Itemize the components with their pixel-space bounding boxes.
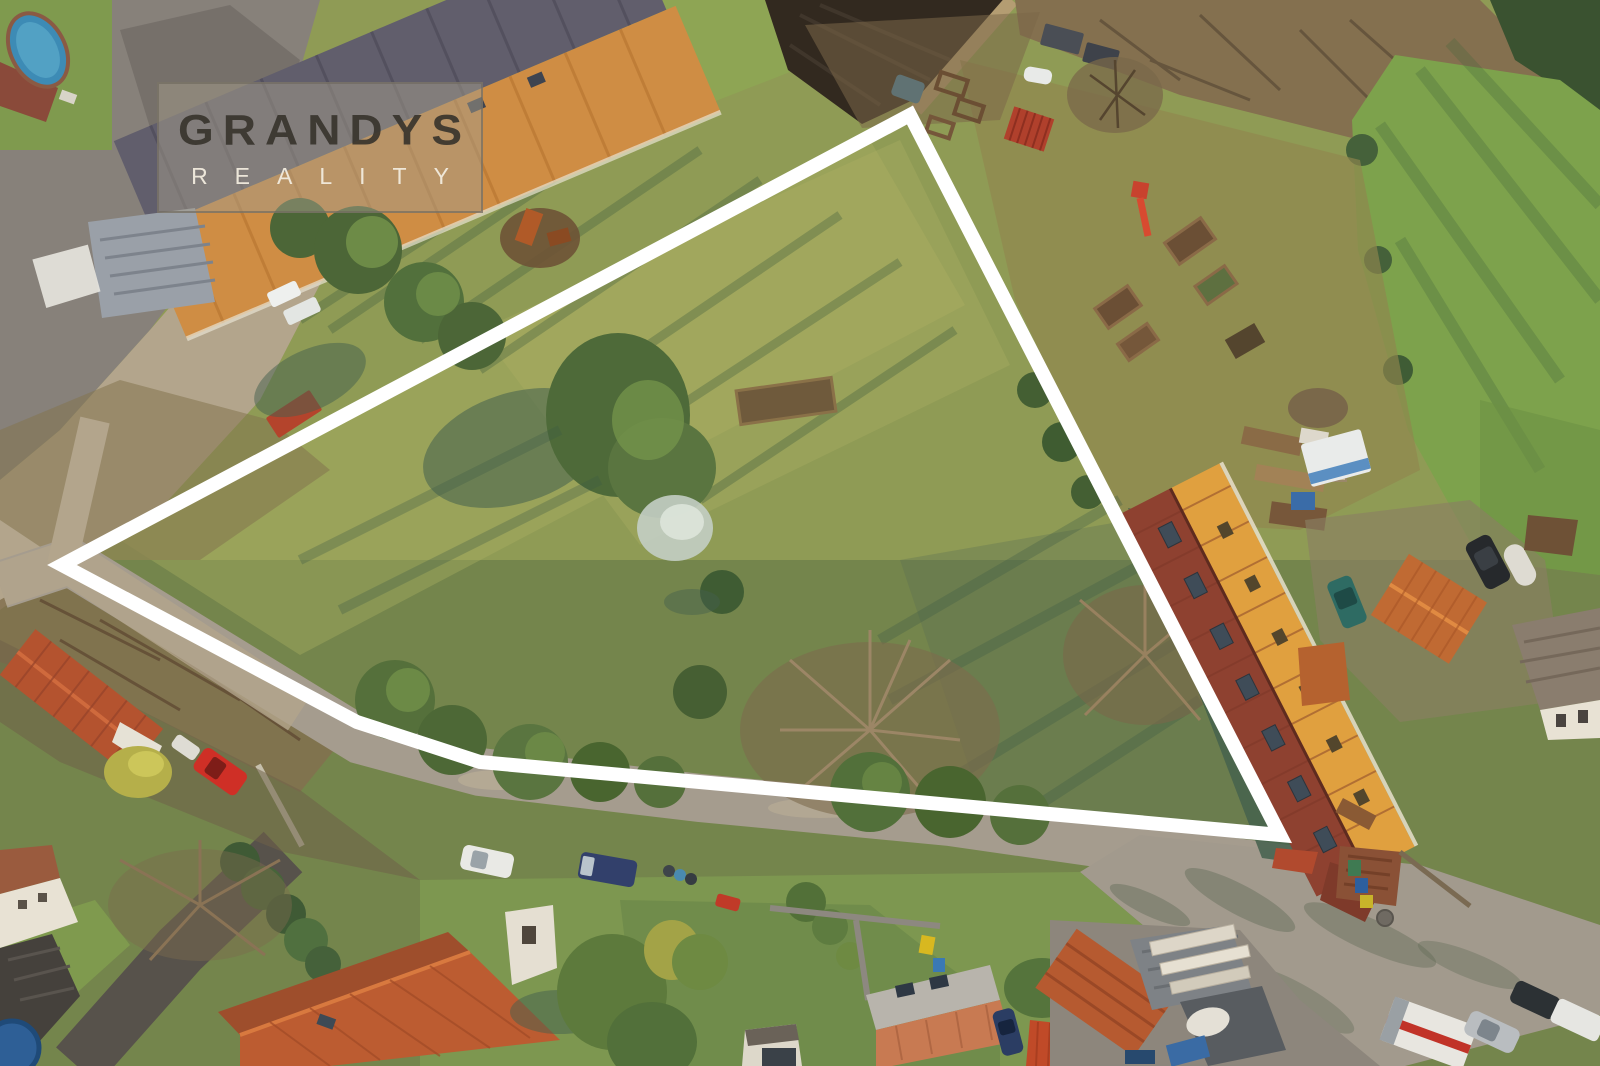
tree-highlight xyxy=(416,272,460,316)
conifer xyxy=(673,665,727,719)
watermark-logo: GRANDYS REALITY xyxy=(157,82,483,213)
window xyxy=(1578,710,1588,723)
tree-highlight xyxy=(346,216,398,268)
aerial-photo: GRANDYS REALITY xyxy=(0,0,1600,1066)
blue-bin xyxy=(933,958,945,972)
bin xyxy=(685,873,697,885)
green-bin xyxy=(1348,860,1361,876)
dirt-patch xyxy=(1524,515,1578,556)
dark-roof-section xyxy=(762,1048,796,1066)
playground-tower xyxy=(1131,181,1150,200)
watermark-subtitle: REALITY xyxy=(191,165,476,188)
window xyxy=(38,893,47,902)
blue-tarp-small xyxy=(1291,492,1315,510)
pale-tree-highlight xyxy=(660,504,704,540)
bin xyxy=(674,869,686,881)
yellow-bush-highlight xyxy=(128,751,164,777)
bare-bush xyxy=(1288,388,1348,428)
blue-trampoline xyxy=(0,1021,39,1066)
canopy-highlight xyxy=(386,668,430,712)
blue-crate xyxy=(1125,1050,1155,1064)
manhole xyxy=(1377,910,1393,926)
gable-window xyxy=(522,926,536,944)
bin xyxy=(663,865,675,877)
tree-highlight xyxy=(612,380,684,460)
blue-bin xyxy=(1355,878,1368,893)
window xyxy=(1556,714,1566,727)
window xyxy=(18,900,27,909)
watermark-title: GRANDYS xyxy=(178,109,471,151)
small-orange-roof xyxy=(1298,642,1350,706)
bush-shadow xyxy=(664,589,720,615)
tree xyxy=(672,934,728,990)
rusty-machinery xyxy=(500,208,580,268)
yellow-bin xyxy=(1360,895,1373,908)
